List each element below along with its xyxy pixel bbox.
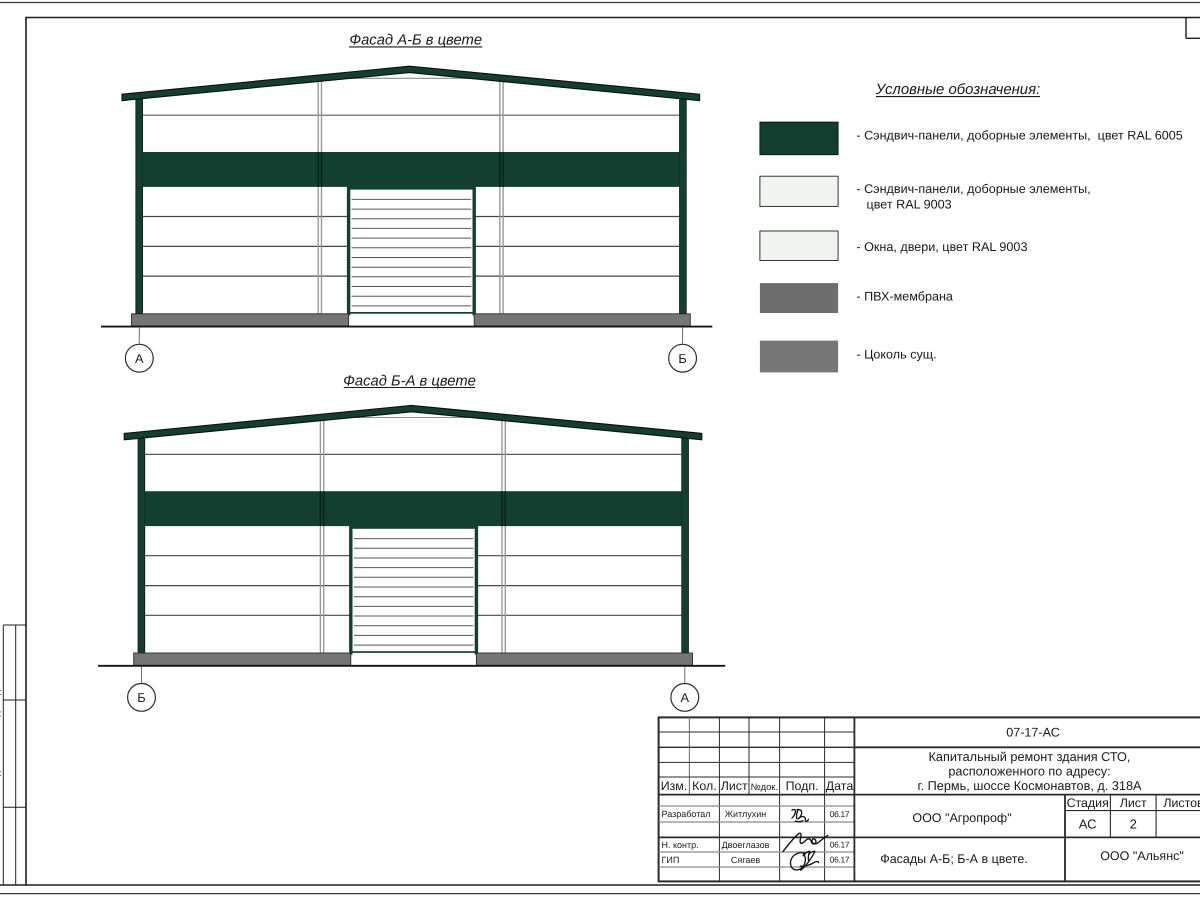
- svg-text:Фасад Б-А в цвете: Фасад Б-А в цвете: [343, 373, 476, 389]
- svg-text:Изм.: Изм.: [661, 779, 688, 793]
- svg-text:Б: Б: [137, 690, 145, 705]
- svg-text:Дата: Дата: [826, 779, 854, 793]
- svg-text:- Сэндвич-панели, доборные эле: - Сэндвич-панели, доборные элементы, цве…: [856, 128, 1182, 142]
- svg-text:Разработал: Разработал: [662, 809, 711, 819]
- svg-text:- Цоколь сущ.: - Цоколь сущ.: [856, 348, 936, 362]
- svg-text:- Сэндвич-панели, доборные эле: - Сэндвич-панели, доборные элементы,: [856, 182, 1090, 196]
- svg-text:Двоеглазов: Двоеглазов: [722, 840, 770, 850]
- svg-text:цвет RAL 9003: цвет RAL 9003: [867, 198, 952, 212]
- svg-text:Б: Б: [678, 351, 686, 366]
- svg-text:07-17-АС: 07-17-АС: [1006, 725, 1060, 739]
- svg-text:Условные обозначения:: Условные обозначения:: [875, 82, 1040, 98]
- svg-text:06.17: 06.17: [830, 855, 850, 865]
- svg-text:Стадия: Стадия: [1067, 796, 1109, 810]
- svg-text:Инв. № подл.: Инв. № подл.: [0, 764, 2, 817]
- svg-text:Лист: Лист: [1120, 796, 1147, 810]
- svg-text:Житлухин: Житлухин: [725, 809, 767, 819]
- svg-text:06.17: 06.17: [830, 809, 850, 819]
- svg-text:Фасады А-Б; Б-А в цвете.: Фасады А-Б; Б-А в цвете.: [880, 852, 1028, 866]
- svg-text:Фасад А-Б в цвете: Фасад А-Б в цвете: [349, 33, 482, 49]
- svg-text:Сягаев: Сягаев: [731, 855, 760, 865]
- svg-text:2: 2: [1130, 816, 1137, 831]
- svg-text:Лист: Лист: [721, 779, 748, 793]
- svg-text:06.17: 06.17: [830, 840, 850, 850]
- svg-text:г. Пермь, шоссе Космонавтов, д: г. Пермь, шоссе Космонавтов, д. 318А: [918, 779, 1142, 793]
- svg-text:- ПВХ-мембрана: - ПВХ-мембрана: [856, 289, 953, 303]
- svg-text:ООО "Альянс": ООО "Альянс": [1100, 849, 1184, 863]
- svg-text:ГИП: ГИП: [662, 855, 680, 865]
- svg-text:А: А: [135, 351, 144, 366]
- svg-text:А: А: [681, 690, 690, 705]
- svg-text:Подп. и дата: Подп. и дата: [0, 677, 2, 727]
- svg-text:Кол.: Кол.: [692, 779, 717, 793]
- svg-text:Подп.: Подп.: [786, 779, 819, 793]
- svg-text:АС: АС: [1079, 816, 1097, 831]
- svg-text:Н. контр.: Н. контр.: [662, 840, 699, 850]
- svg-text:№док.: №док.: [751, 781, 778, 792]
- svg-text:Капитальный ремонт здания СТО,: Капитальный ремонт здания СТО,: [929, 750, 1131, 764]
- svg-text:ООО "Агропроф": ООО "Агропроф": [912, 811, 1011, 825]
- svg-text:- Окна, двери, цвет RAL 9003: - Окна, двери, цвет RAL 9003: [856, 240, 1027, 254]
- svg-text:расположенного по адресу:: расположенного по адресу:: [948, 764, 1110, 778]
- svg-text:Листов: Листов: [1163, 796, 1200, 810]
